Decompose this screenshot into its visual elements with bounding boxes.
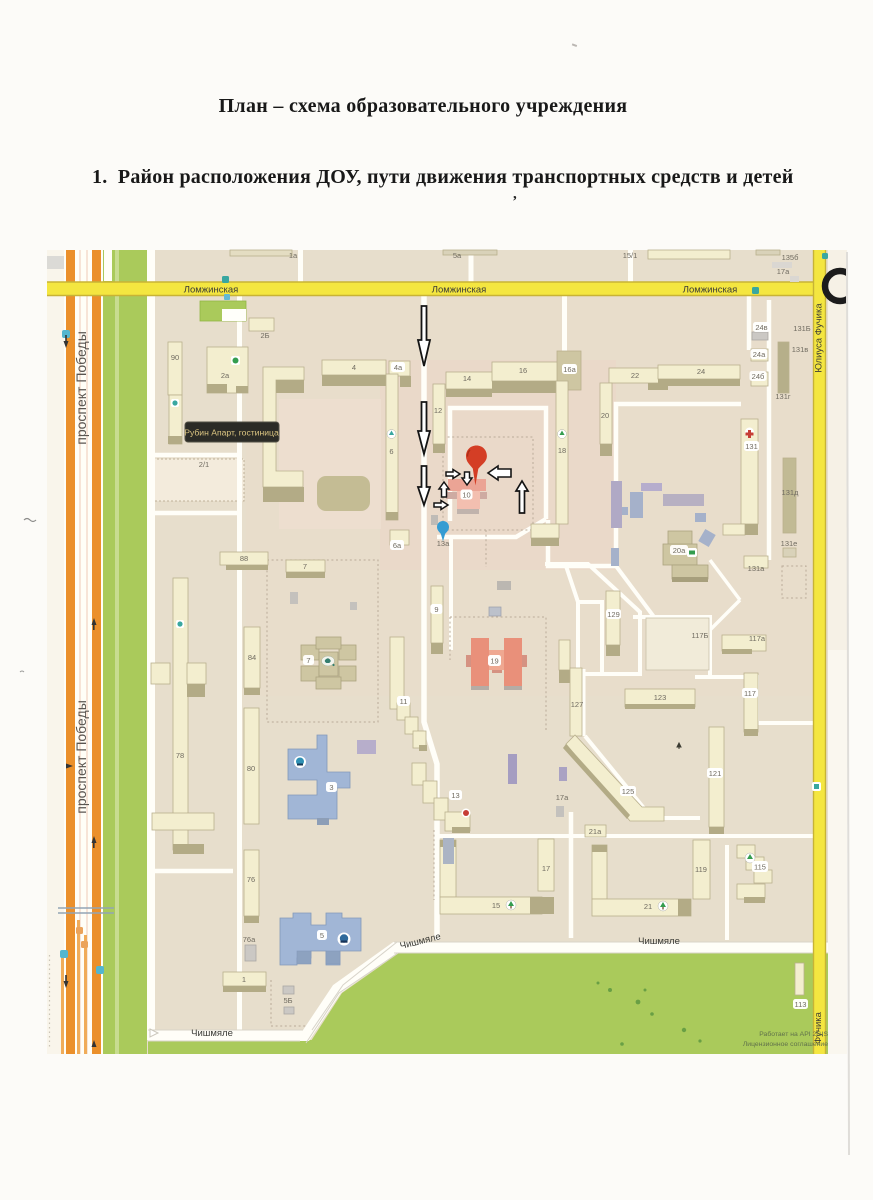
svg-text:5: 5 (320, 931, 324, 940)
svg-text:113: 113 (795, 1000, 807, 1009)
svg-text:9: 9 (434, 605, 438, 614)
svg-text:6а: 6а (393, 541, 402, 550)
svg-text:Ломжинская: Ломжинская (184, 285, 239, 296)
svg-text:131е: 131е (781, 539, 798, 548)
svg-text:121: 121 (709, 769, 722, 778)
svg-text:17а: 17а (777, 267, 790, 276)
svg-text:21: 21 (644, 902, 652, 911)
svg-text:7: 7 (303, 562, 307, 571)
svg-text:15/1: 15/1 (623, 251, 638, 260)
svg-text:80: 80 (247, 764, 255, 773)
svg-text:7: 7 (306, 656, 310, 665)
svg-text:115: 115 (754, 863, 766, 872)
svg-text:117: 117 (744, 689, 756, 698)
svg-text:20а: 20а (673, 546, 686, 555)
svg-text:14: 14 (463, 374, 471, 383)
svg-text:2/1: 2/1 (199, 460, 209, 469)
svg-text:17: 17 (542, 864, 550, 873)
svg-text:13: 13 (451, 791, 459, 800)
svg-text:проспект Победы: проспект Победы (73, 331, 89, 445)
svg-text:129: 129 (607, 610, 620, 619)
svg-text:131Б: 131Б (793, 324, 811, 333)
svg-text:Чишмяле: Чишмяле (191, 1028, 233, 1039)
svg-text:16: 16 (519, 366, 527, 375)
svg-text:76: 76 (247, 875, 255, 884)
svg-text:Юлиуса Фучика: Юлиуса Фучика (814, 303, 825, 373)
svg-text:проспект Победы: проспект Победы (73, 700, 89, 814)
svg-text:21а: 21а (589, 827, 602, 836)
svg-text:78: 78 (176, 751, 184, 760)
svg-text:131д: 131д (782, 488, 800, 497)
svg-text:2Б: 2Б (260, 331, 269, 340)
svg-text:Фучика: Фучика (813, 1011, 824, 1044)
svg-text:117Б: 117Б (692, 631, 709, 640)
svg-text:Работает на API 2GIS: Работает на API 2GIS (759, 1030, 828, 1038)
svg-text:125: 125 (622, 787, 635, 796)
svg-text:131: 131 (745, 442, 758, 451)
svg-text:17а: 17а (556, 793, 569, 802)
svg-text:2а: 2а (221, 371, 230, 380)
svg-text:15: 15 (492, 901, 500, 910)
svg-text:13а: 13а (437, 539, 450, 548)
svg-text:76а: 76а (243, 935, 256, 944)
svg-text:24а: 24а (753, 350, 766, 359)
svg-text:90: 90 (171, 353, 179, 362)
svg-text:1: 1 (242, 975, 246, 984)
svg-text:1а: 1а (289, 251, 298, 260)
svg-text:123: 123 (654, 693, 667, 702)
svg-text:84: 84 (248, 653, 256, 662)
svg-text:135б: 135б (782, 253, 799, 262)
svg-text:24в: 24в (755, 323, 767, 332)
svg-text:10: 10 (462, 491, 470, 500)
svg-text:6: 6 (389, 447, 393, 456)
svg-text:16а: 16а (563, 365, 576, 374)
svg-text:20: 20 (601, 411, 609, 420)
svg-text:131а: 131а (748, 564, 766, 573)
svg-text:131в: 131в (792, 345, 809, 354)
svg-text:24б: 24б (752, 372, 765, 381)
svg-text:88: 88 (240, 554, 248, 563)
svg-text:12: 12 (434, 406, 442, 415)
svg-text:3: 3 (329, 783, 333, 792)
svg-text:127: 127 (571, 700, 584, 709)
svg-text:19: 19 (490, 657, 498, 666)
svg-text:4: 4 (352, 363, 356, 372)
svg-text:Ломжинская: Ломжинская (683, 285, 738, 296)
svg-text:11: 11 (400, 697, 408, 706)
svg-text:131г: 131г (775, 392, 791, 401)
svg-text:4а: 4а (394, 363, 403, 372)
svg-text:24: 24 (697, 367, 705, 376)
svg-text:5Б: 5Б (283, 996, 292, 1005)
svg-text:Лицензионное соглашение: Лицензионное соглашение (743, 1041, 828, 1048)
svg-text:Чишмяле: Чишмяле (638, 936, 680, 947)
svg-text:5а: 5а (453, 251, 462, 260)
svg-text:117а: 117а (749, 634, 766, 643)
svg-text:Ломжинская: Ломжинская (432, 285, 487, 296)
svg-text:22: 22 (631, 371, 639, 380)
svg-text:119: 119 (695, 865, 707, 874)
svg-text:Рубин Апарт, гостиница: Рубин Апарт, гостиница (184, 428, 279, 438)
svg-text:18: 18 (558, 446, 566, 455)
